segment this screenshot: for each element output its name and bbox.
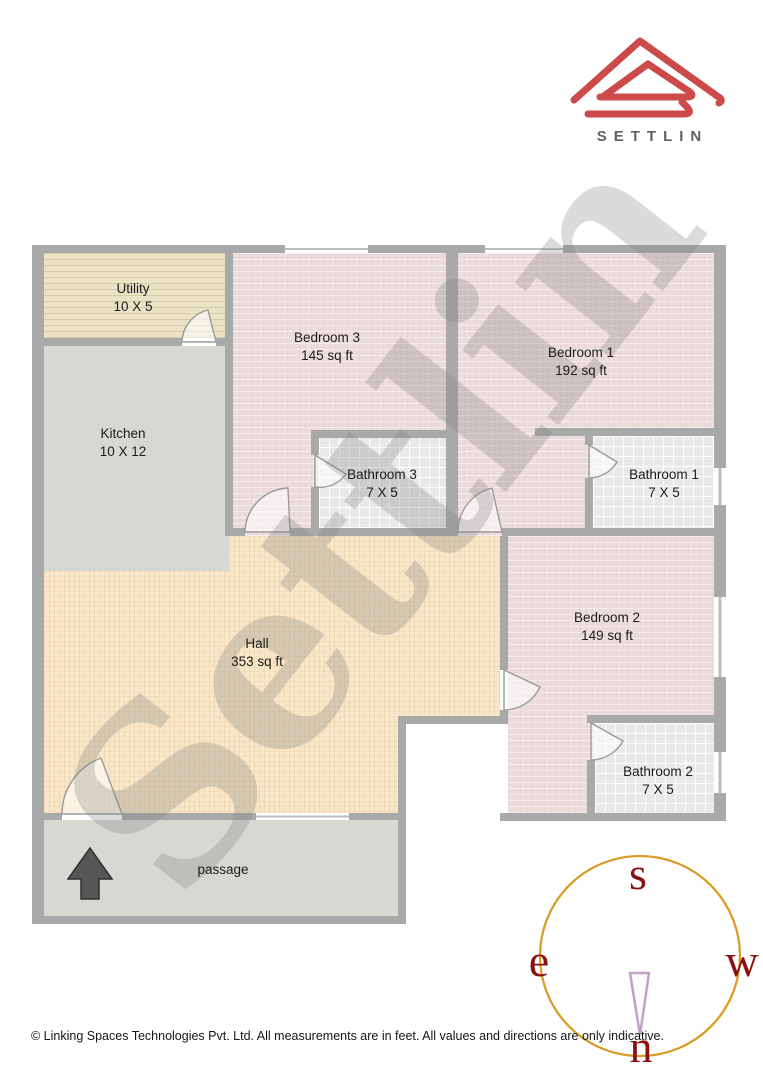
room-name: Utility: [113, 280, 152, 298]
label-hall: Hall 353 sq ft: [231, 635, 283, 671]
settlin-logo-icon: [566, 26, 732, 122]
room-size: 7 X 5: [623, 781, 693, 799]
logo-wordmark: SETTLIN: [566, 128, 732, 145]
room-size: 145 sq ft: [294, 347, 360, 365]
copyright-note: © Linking Spaces Technologies Pvt. Ltd. …: [31, 1029, 664, 1043]
label-utility: Utility 10 X 5: [113, 280, 152, 316]
settlin-logo: SETTLIN: [566, 26, 732, 145]
label-passage: passage: [197, 861, 248, 879]
label-bathroom3: Bathroom 3 7 X 5: [347, 466, 417, 502]
door-bedroom1: [458, 488, 502, 532]
room-name: Bedroom 3: [294, 329, 360, 347]
compass-south: s: [629, 851, 647, 897]
door-bedroom3: [245, 488, 290, 532]
room-name: passage: [197, 861, 248, 879]
room-size: 10 X 5: [113, 298, 152, 316]
room-name: Bathroom 1: [629, 466, 699, 484]
door-entrance: [62, 758, 122, 814]
floor-plan-page: { "brand": { "logo_text": "SETTLIN", "lo…: [0, 0, 763, 1080]
door-bathroom1: [589, 445, 617, 478]
room-name: Kitchen: [100, 425, 147, 443]
label-bedroom2: Bedroom 2 149 sq ft: [574, 609, 640, 645]
door-bedroom2: [504, 670, 540, 710]
room-name: Bedroom 1: [548, 344, 614, 362]
door-utility: [182, 310, 216, 342]
room-size: 149 sq ft: [574, 627, 640, 645]
compass-east: e: [529, 938, 549, 984]
entrance-arrow-icon: [68, 848, 112, 899]
room-size: 7 X 5: [347, 484, 417, 502]
room-size: 10 X 12: [100, 443, 147, 461]
room-name: Bathroom 2: [623, 763, 693, 781]
room-name: Bathroom 3: [347, 466, 417, 484]
room-size: 7 X 5: [629, 484, 699, 502]
room-name: Bedroom 2: [574, 609, 640, 627]
room-name: Hall: [231, 635, 283, 653]
label-kitchen: Kitchen 10 X 12: [100, 425, 147, 461]
room-size: 353 sq ft: [231, 653, 283, 671]
door-bathroom2: [591, 723, 623, 760]
label-bedroom3: Bedroom 3 145 sq ft: [294, 329, 360, 365]
label-bedroom1: Bedroom 1 192 sq ft: [548, 344, 614, 380]
room-size: 192 sq ft: [548, 362, 614, 380]
door-bathroom3: [315, 455, 346, 487]
label-bathroom2: Bathroom 2 7 X 5: [623, 763, 693, 799]
label-bathroom1: Bathroom 1 7 X 5: [629, 466, 699, 502]
compass-west: w: [725, 938, 758, 984]
